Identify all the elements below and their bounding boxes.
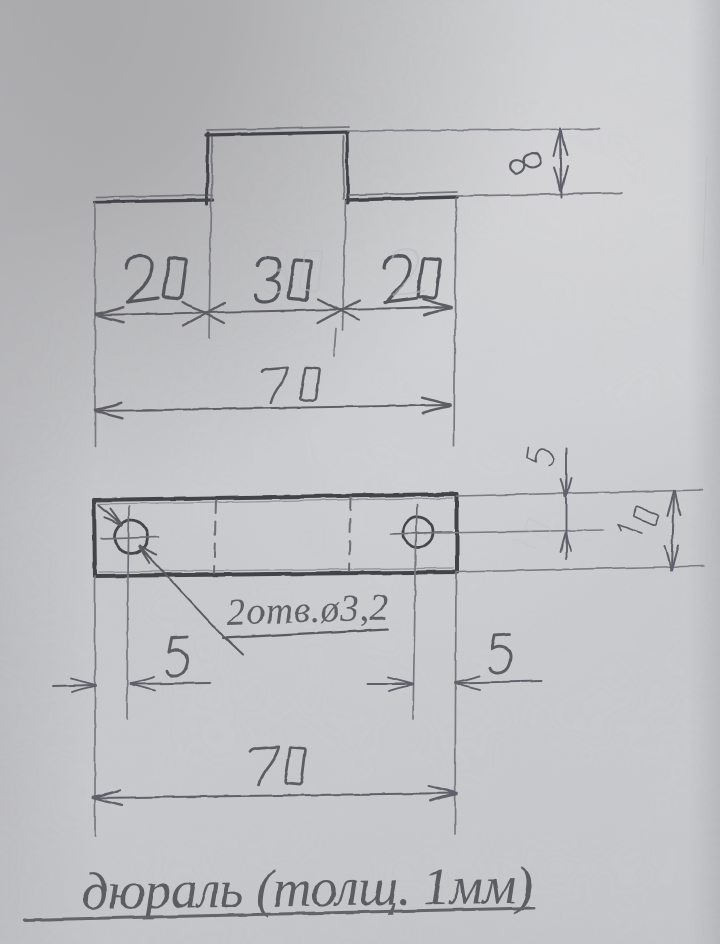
svg-text:2отв.ø3,2: 2отв.ø3,2 (226, 586, 390, 634)
svg-text:дюраль (толщ. 1мм): дюраль (толщ. 1мм) (81, 857, 533, 921)
